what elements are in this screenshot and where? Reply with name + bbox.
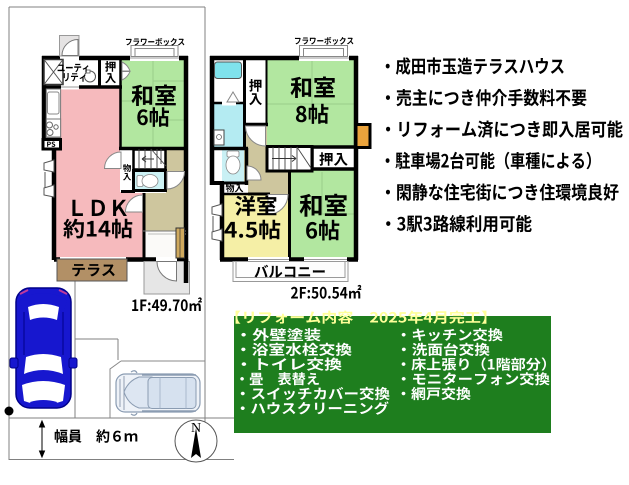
svg-text:N: N xyxy=(191,421,201,436)
